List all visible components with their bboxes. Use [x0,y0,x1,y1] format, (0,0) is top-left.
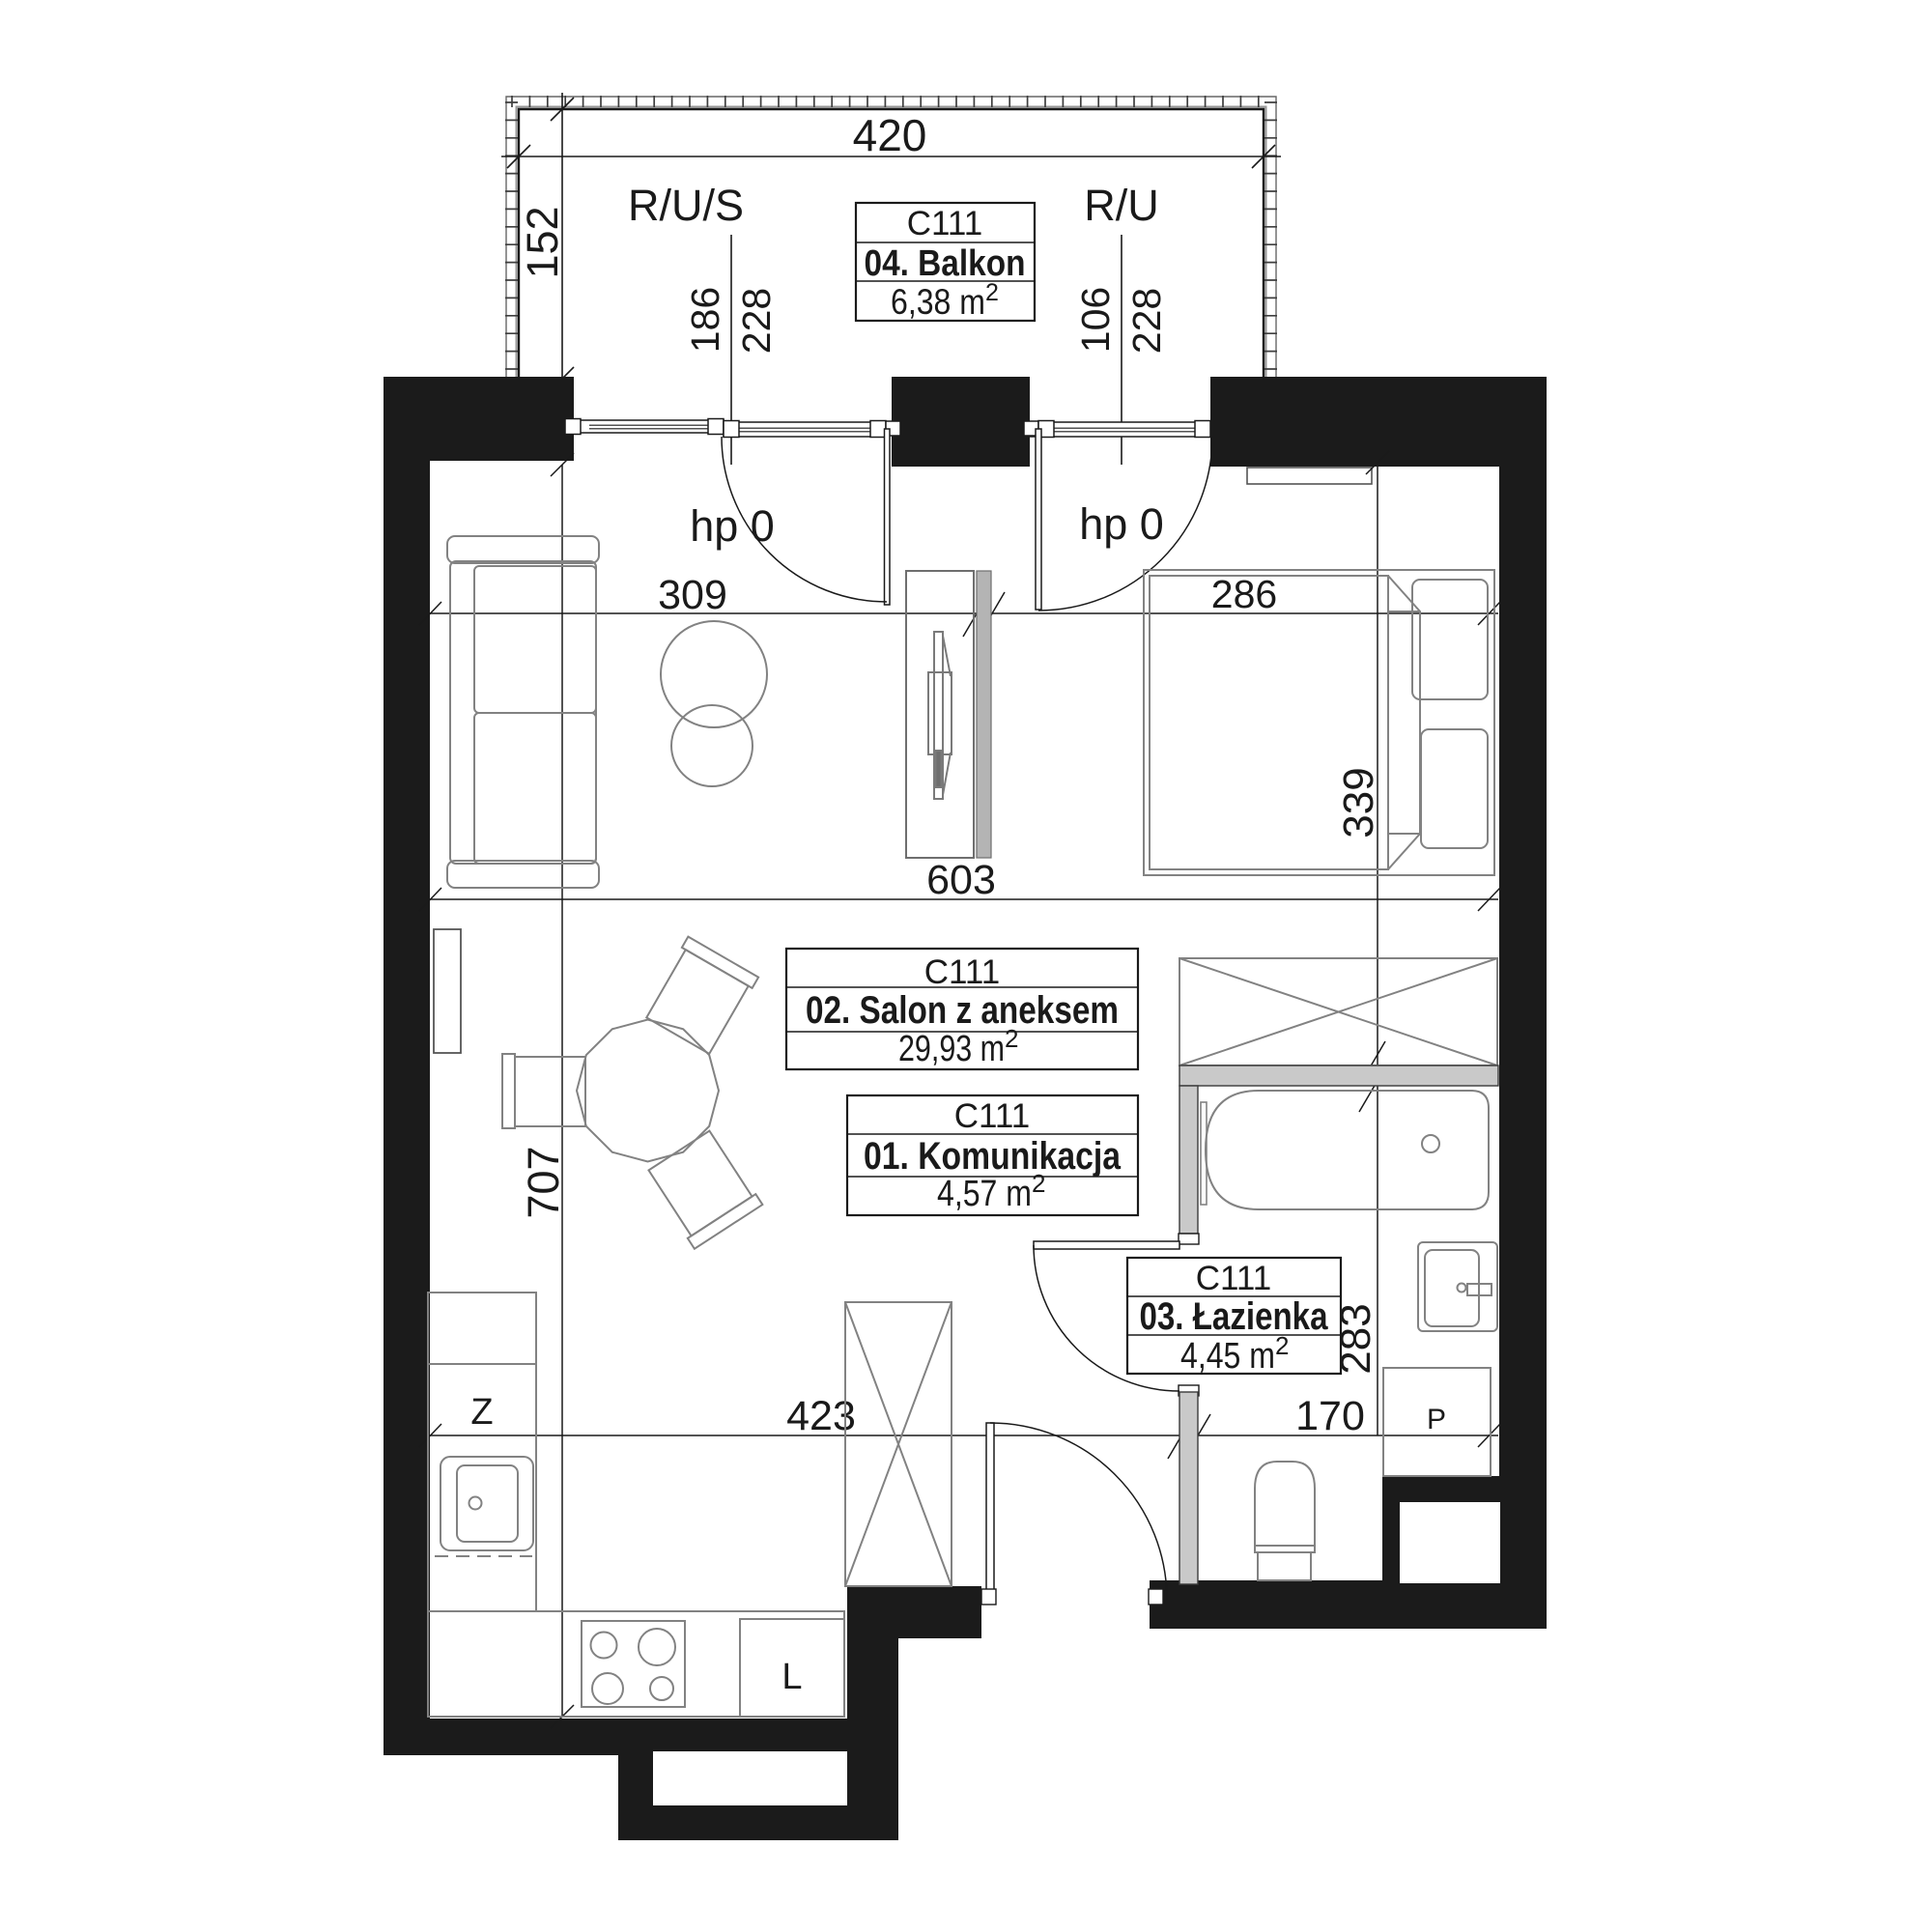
svg-text:309: 309 [658,572,727,618]
svg-text:6,38 m2: 6,38 m2 [891,279,999,322]
svg-text:170: 170 [1295,1393,1365,1439]
svg-text:152: 152 [518,206,567,278]
svg-text:C111: C111 [924,953,1000,991]
svg-text:4,57 m2: 4,57 m2 [937,1169,1045,1214]
svg-text:420: 420 [853,110,927,160]
svg-text:339: 339 [1335,767,1382,838]
svg-text:603: 603 [926,857,996,903]
svg-text:4,45 m2: 4,45 m2 [1180,1331,1289,1377]
svg-text:02. Salon z aneksem: 02. Salon z aneksem [806,989,1119,1032]
svg-text:P: P [1427,1404,1446,1435]
svg-text:C111: C111 [954,1097,1030,1135]
svg-text:R/U/S: R/U/S [628,181,744,230]
svg-text:L: L [781,1657,802,1697]
svg-text:hp 0: hp 0 [690,501,775,551]
svg-text:hp 0: hp 0 [1079,499,1164,549]
svg-text:01. Komunikacja: 01. Komunikacja [864,1135,1122,1178]
svg-text:C111: C111 [1196,1260,1271,1297]
svg-text:Z: Z [470,1392,493,1433]
svg-text:03. Łazienka: 03. Łazienka [1140,1295,1329,1338]
svg-text:228: 228 [734,288,779,354]
svg-text:R/U: R/U [1084,181,1159,230]
svg-text:106: 106 [1073,287,1118,353]
svg-text:707: 707 [519,1146,568,1218]
svg-text:C111: C111 [907,205,982,242]
svg-text:228: 228 [1124,288,1169,354]
svg-text:186: 186 [683,287,727,353]
svg-text:04. Balkon: 04. Balkon [865,243,1026,284]
svg-text:29,93 m2: 29,93 m2 [898,1024,1018,1069]
svg-text:286: 286 [1211,572,1277,616]
